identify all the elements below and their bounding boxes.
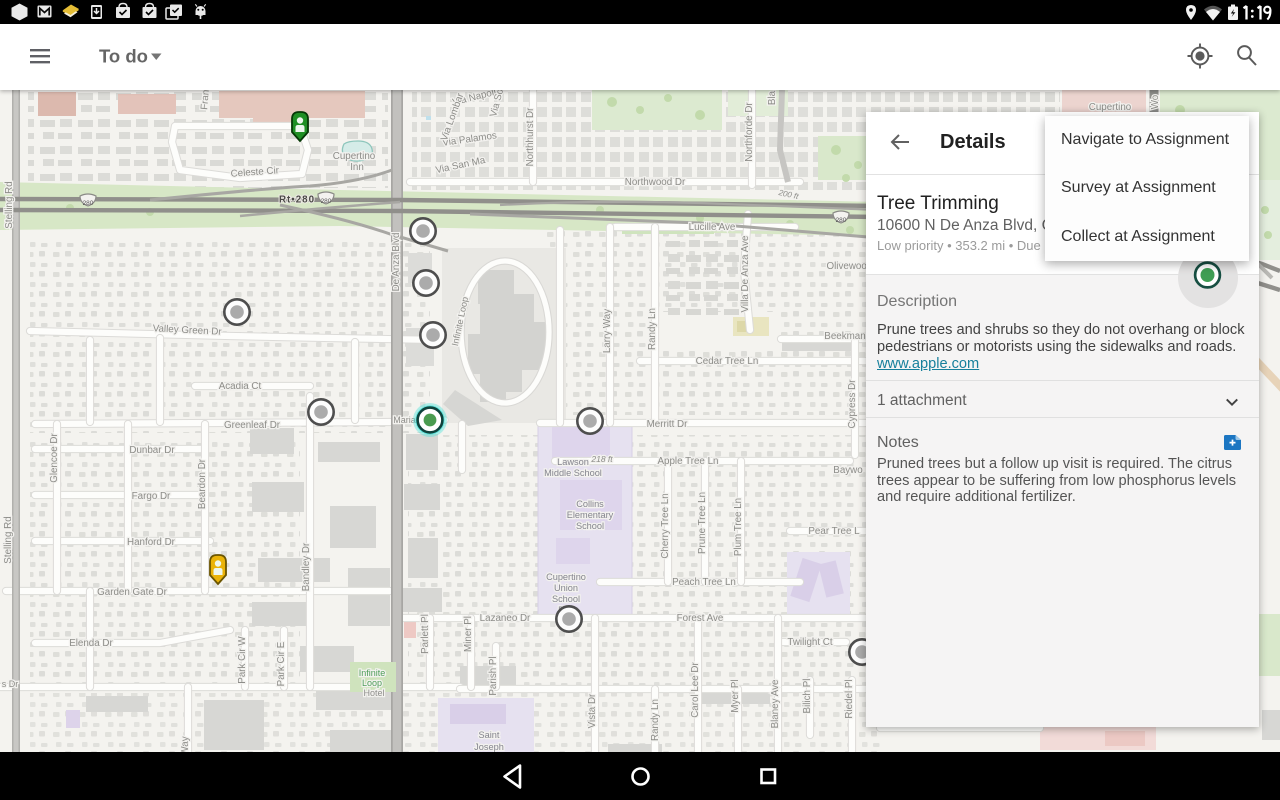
svg-text:Riedel Pl: Riedel Pl (844, 679, 855, 718)
svg-text:Peach Tree Ln: Peach Tree Ln (672, 577, 736, 588)
svg-text:Pear Tree L: Pear Tree L (808, 526, 860, 537)
svg-text:Vista Dr: Vista Dr (587, 693, 598, 728)
svg-text:218 ft: 218 ft (590, 454, 613, 464)
svg-text:Cedar Tree Ln: Cedar Tree Ln (696, 356, 759, 367)
svg-text:Apple Tree Ln: Apple Tree Ln (657, 456, 718, 467)
svg-text:Collins: Collins (576, 499, 604, 509)
svg-text:Union: Union (554, 583, 578, 593)
svg-text:Parlett Pl: Parlett Pl (420, 614, 431, 654)
svg-text:s Dr: s Dr (2, 679, 19, 689)
svg-text:Elenda Dr: Elenda Dr (69, 638, 113, 649)
svg-text:Wo: Wo (1150, 94, 1161, 109)
svg-text:Carol Lee Dr: Carol Lee Dr (690, 661, 701, 717)
svg-text:280: 280 (321, 198, 332, 205)
svg-text:Garden Gate Dr: Garden Gate Dr (97, 587, 167, 598)
svg-text:Hanford Dr: Hanford Dr (127, 537, 176, 548)
svg-text:Cupertino: Cupertino (333, 151, 376, 162)
svg-text:To do: To do (99, 46, 148, 67)
svg-text:Middle School: Middle School (544, 468, 602, 478)
svg-text:Stelling Rd: Stelling Rd (3, 516, 14, 563)
svg-text:Lucille Ave: Lucille Ave (689, 222, 736, 233)
svg-text:Randy Ln: Randy Ln (647, 308, 658, 350)
svg-text:Glencoe Dr: Glencoe Dr (49, 432, 60, 482)
svg-text:Bandley Dr: Bandley Dr (301, 542, 312, 591)
svg-text:Parish Pl: Parish Pl (488, 656, 499, 695)
svg-text:Stelling Rd: Stelling Rd (4, 181, 15, 228)
svg-text:Park Cir E: Park Cir E (276, 641, 287, 686)
svg-text:Fran: Fran (199, 90, 212, 110)
svg-text:280: 280 (836, 217, 847, 224)
svg-text:Cypress Dr: Cypress Dr (847, 379, 858, 429)
svg-text:Park Cir W: Park Cir W (237, 636, 248, 684)
svg-text:Cupertino: Cupertino (546, 572, 586, 582)
svg-text:Hotel: Hotel (363, 688, 384, 698)
svg-text:Villa De Anza Ave: Villa De Anza Ave (740, 235, 751, 313)
svg-text:280: 280 (83, 200, 94, 207)
svg-text:Bilich Pl: Bilich Pl (802, 679, 813, 714)
svg-text:Way: Way (180, 736, 191, 752)
svg-text:Joseph: Joseph (474, 742, 504, 752)
svg-text:Rt•280: Rt•280 (279, 195, 315, 206)
svg-text:Northhurst Dr: Northhurst Dr (525, 107, 536, 167)
svg-text:Beekman: Beekman (824, 331, 865, 342)
svg-text:Infinite: Infinite (359, 668, 386, 678)
svg-text:Northforde Dr: Northforde Dr (744, 102, 755, 162)
svg-text:Myer Pl: Myer Pl (730, 679, 741, 712)
svg-text:Bla: Bla (767, 90, 778, 105)
svg-text:Twilight Ct: Twilight Ct (787, 637, 832, 648)
svg-text:School: School (552, 594, 580, 604)
svg-text:Blaney Ave: Blaney Ave (770, 679, 781, 728)
svg-text:Larry Way: Larry Way (602, 309, 613, 353)
svg-text:Elementary: Elementary (567, 510, 614, 520)
svg-text:Loop: Loop (362, 678, 382, 688)
svg-text:Prune Tree Ln: Prune Tree Ln (697, 492, 708, 554)
svg-text:Saint: Saint (479, 730, 500, 740)
svg-text:Northwood Dr: Northwood Dr (625, 177, 686, 188)
svg-text:Inn: Inn (350, 162, 364, 173)
svg-text:Miner Pl: Miner Pl (463, 616, 474, 652)
svg-text:De Anza Blvd: De Anza Blvd (391, 233, 402, 292)
svg-text:School: School (576, 521, 604, 531)
svg-text:Greenleaf Dr: Greenleaf Dr (224, 420, 281, 431)
svg-text:Cherry Tree Ln: Cherry Tree Ln (660, 493, 671, 558)
svg-text:Merritt Dr: Merritt Dr (647, 419, 689, 430)
svg-text:Lawson: Lawson (557, 457, 589, 467)
svg-text:Dunbar Dr: Dunbar Dr (129, 445, 175, 456)
svg-text:Forest Ave: Forest Ave (677, 613, 724, 624)
svg-text:Fargo Dr: Fargo Dr (132, 491, 171, 502)
svg-text:Randy Ln: Randy Ln (650, 699, 661, 741)
svg-text:Lazaneo Dr: Lazaneo Dr (480, 613, 531, 624)
svg-text:Plum Tree Ln: Plum Tree Ln (733, 498, 744, 556)
svg-text:Baywo: Baywo (833, 465, 863, 476)
svg-text:Acadia Ct: Acadia Ct (219, 381, 262, 392)
svg-text:Beardon Dr: Beardon Dr (197, 458, 208, 509)
